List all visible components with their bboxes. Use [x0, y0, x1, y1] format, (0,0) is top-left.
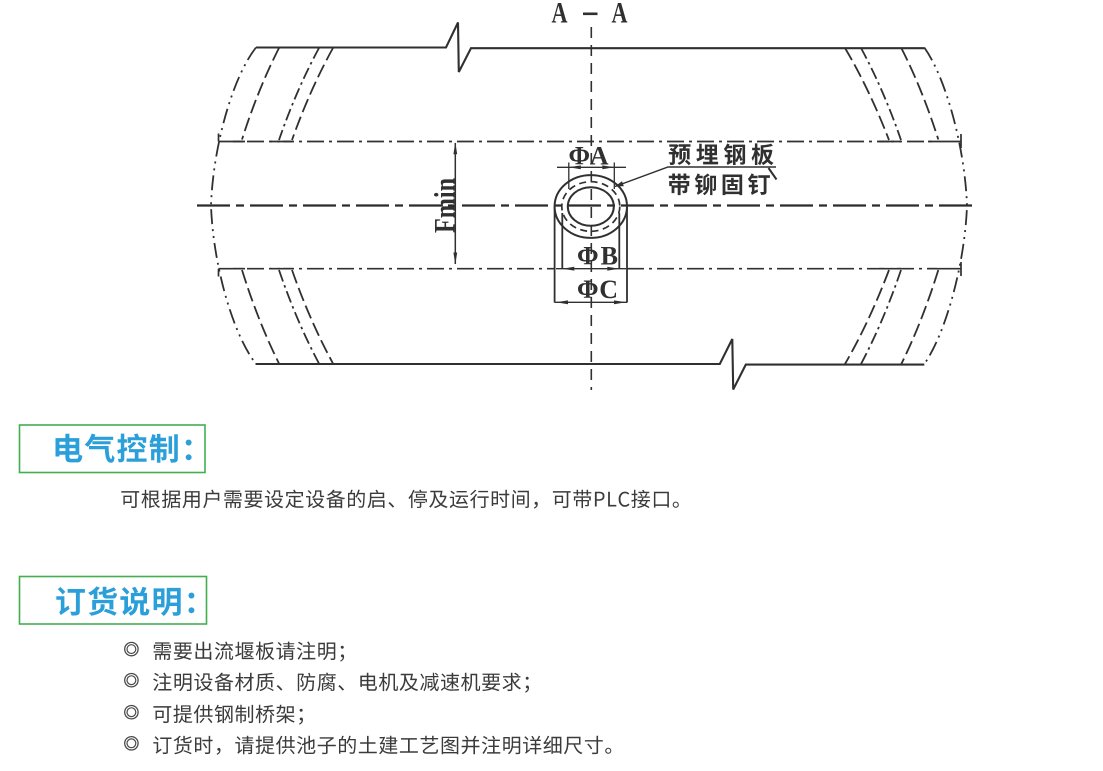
svg-text:ΦB: ΦB — [577, 242, 622, 271]
svg-text:ΦC: ΦC — [577, 275, 622, 304]
svg-text:Fmin: Fmin — [429, 178, 462, 233]
svg-text:ΦA: ΦA — [569, 142, 613, 171]
svg-text:A: A — [612, 0, 628, 29]
svg-text:A: A — [552, 0, 568, 29]
